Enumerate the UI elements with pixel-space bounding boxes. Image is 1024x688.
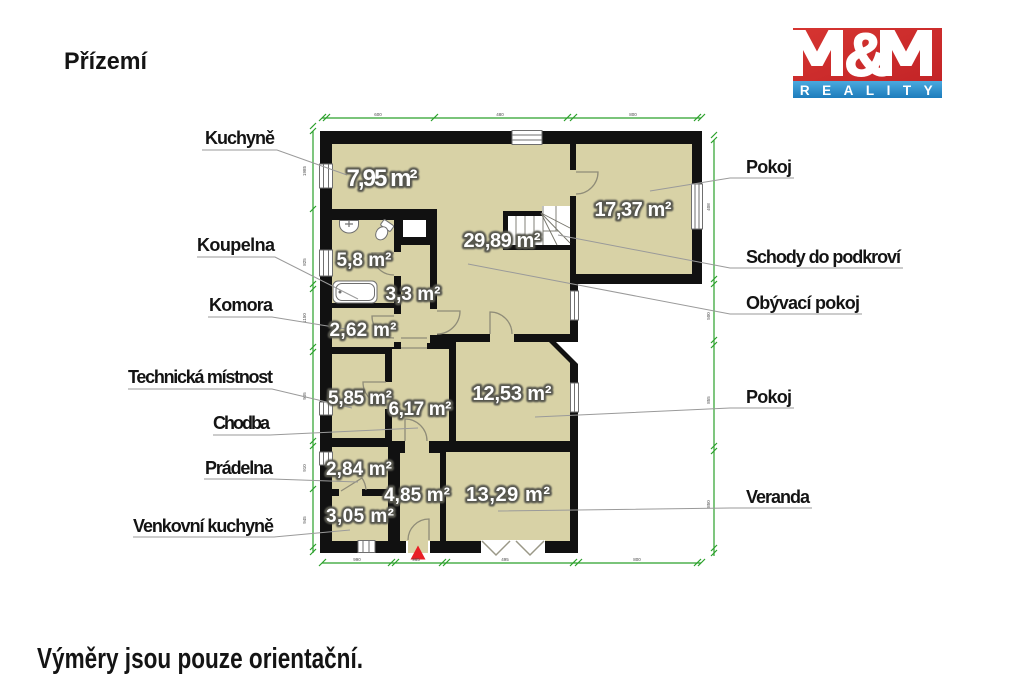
svg-text:7,95 m²: 7,95 m² <box>347 165 418 192</box>
svg-text:29,89 m²: 29,89 m² <box>464 230 541 252</box>
svg-text:Komora: Komora <box>209 295 274 315</box>
svg-text:1985: 1985 <box>302 165 307 176</box>
svg-text:800: 800 <box>629 112 637 117</box>
svg-text:2,62 m²: 2,62 m² <box>330 320 397 341</box>
svg-text:Veranda: Veranda <box>746 487 811 507</box>
svg-text:12,53 m²: 12,53 m² <box>473 383 552 405</box>
svg-text:Chodba: Chodba <box>213 413 271 433</box>
svg-text:Pokoj: Pokoj <box>746 157 792 177</box>
svg-text:Koupelna: Koupelna <box>197 235 276 255</box>
svg-text:Venkovní kuchyně: Venkovní kuchyně <box>133 516 274 536</box>
svg-text:&: & <box>844 22 887 89</box>
svg-text:480: 480 <box>496 112 504 117</box>
svg-text:800: 800 <box>633 557 641 562</box>
svg-text:4,85 m²: 4,85 m² <box>384 485 450 506</box>
svg-text:Technická místnost: Technická místnost <box>128 367 273 387</box>
svg-text:990: 990 <box>353 557 361 562</box>
svg-text:Přízemí: Přízemí <box>64 48 148 75</box>
svg-text:850: 850 <box>706 500 711 508</box>
svg-text:Obývací pokoj: Obývací pokoj <box>746 293 860 313</box>
svg-text:Výměry jsou pouze orientační.: Výměry jsou pouze orientační. <box>37 643 363 675</box>
svg-text:408: 408 <box>706 203 711 211</box>
svg-text:5,8 m²: 5,8 m² <box>337 250 392 271</box>
svg-text:905: 905 <box>302 392 307 400</box>
svg-text:965: 965 <box>412 557 420 562</box>
svg-text:REALITY: REALITY <box>800 83 945 98</box>
svg-text:17,37 m²: 17,37 m² <box>595 199 672 221</box>
svg-text:600: 600 <box>374 112 382 117</box>
svg-text:495: 495 <box>501 557 509 562</box>
svg-text:3,3 m²: 3,3 m² <box>386 284 441 305</box>
svg-text:855: 855 <box>706 396 711 404</box>
svg-text:Pokoj: Pokoj <box>746 387 792 407</box>
svg-text:Schody do podkroví: Schody do podkroví <box>746 247 902 267</box>
svg-text:1150: 1150 <box>302 313 307 323</box>
svg-text:910: 910 <box>302 464 307 472</box>
svg-text:5,85 m²: 5,85 m² <box>328 388 392 409</box>
svg-text:6,17 m²: 6,17 m² <box>389 399 452 420</box>
svg-text:945: 945 <box>302 516 307 524</box>
svg-text:500: 500 <box>706 312 711 320</box>
svg-text:Prádelna: Prádelna <box>205 458 274 478</box>
svg-text:3,05 m²: 3,05 m² <box>326 506 394 527</box>
svg-text:Kuchyně: Kuchyně <box>205 128 275 148</box>
svg-text:13,29 m²: 13,29 m² <box>466 484 550 506</box>
svg-text:2,84 m²: 2,84 m² <box>326 459 392 480</box>
svg-text:825: 825 <box>302 258 307 266</box>
